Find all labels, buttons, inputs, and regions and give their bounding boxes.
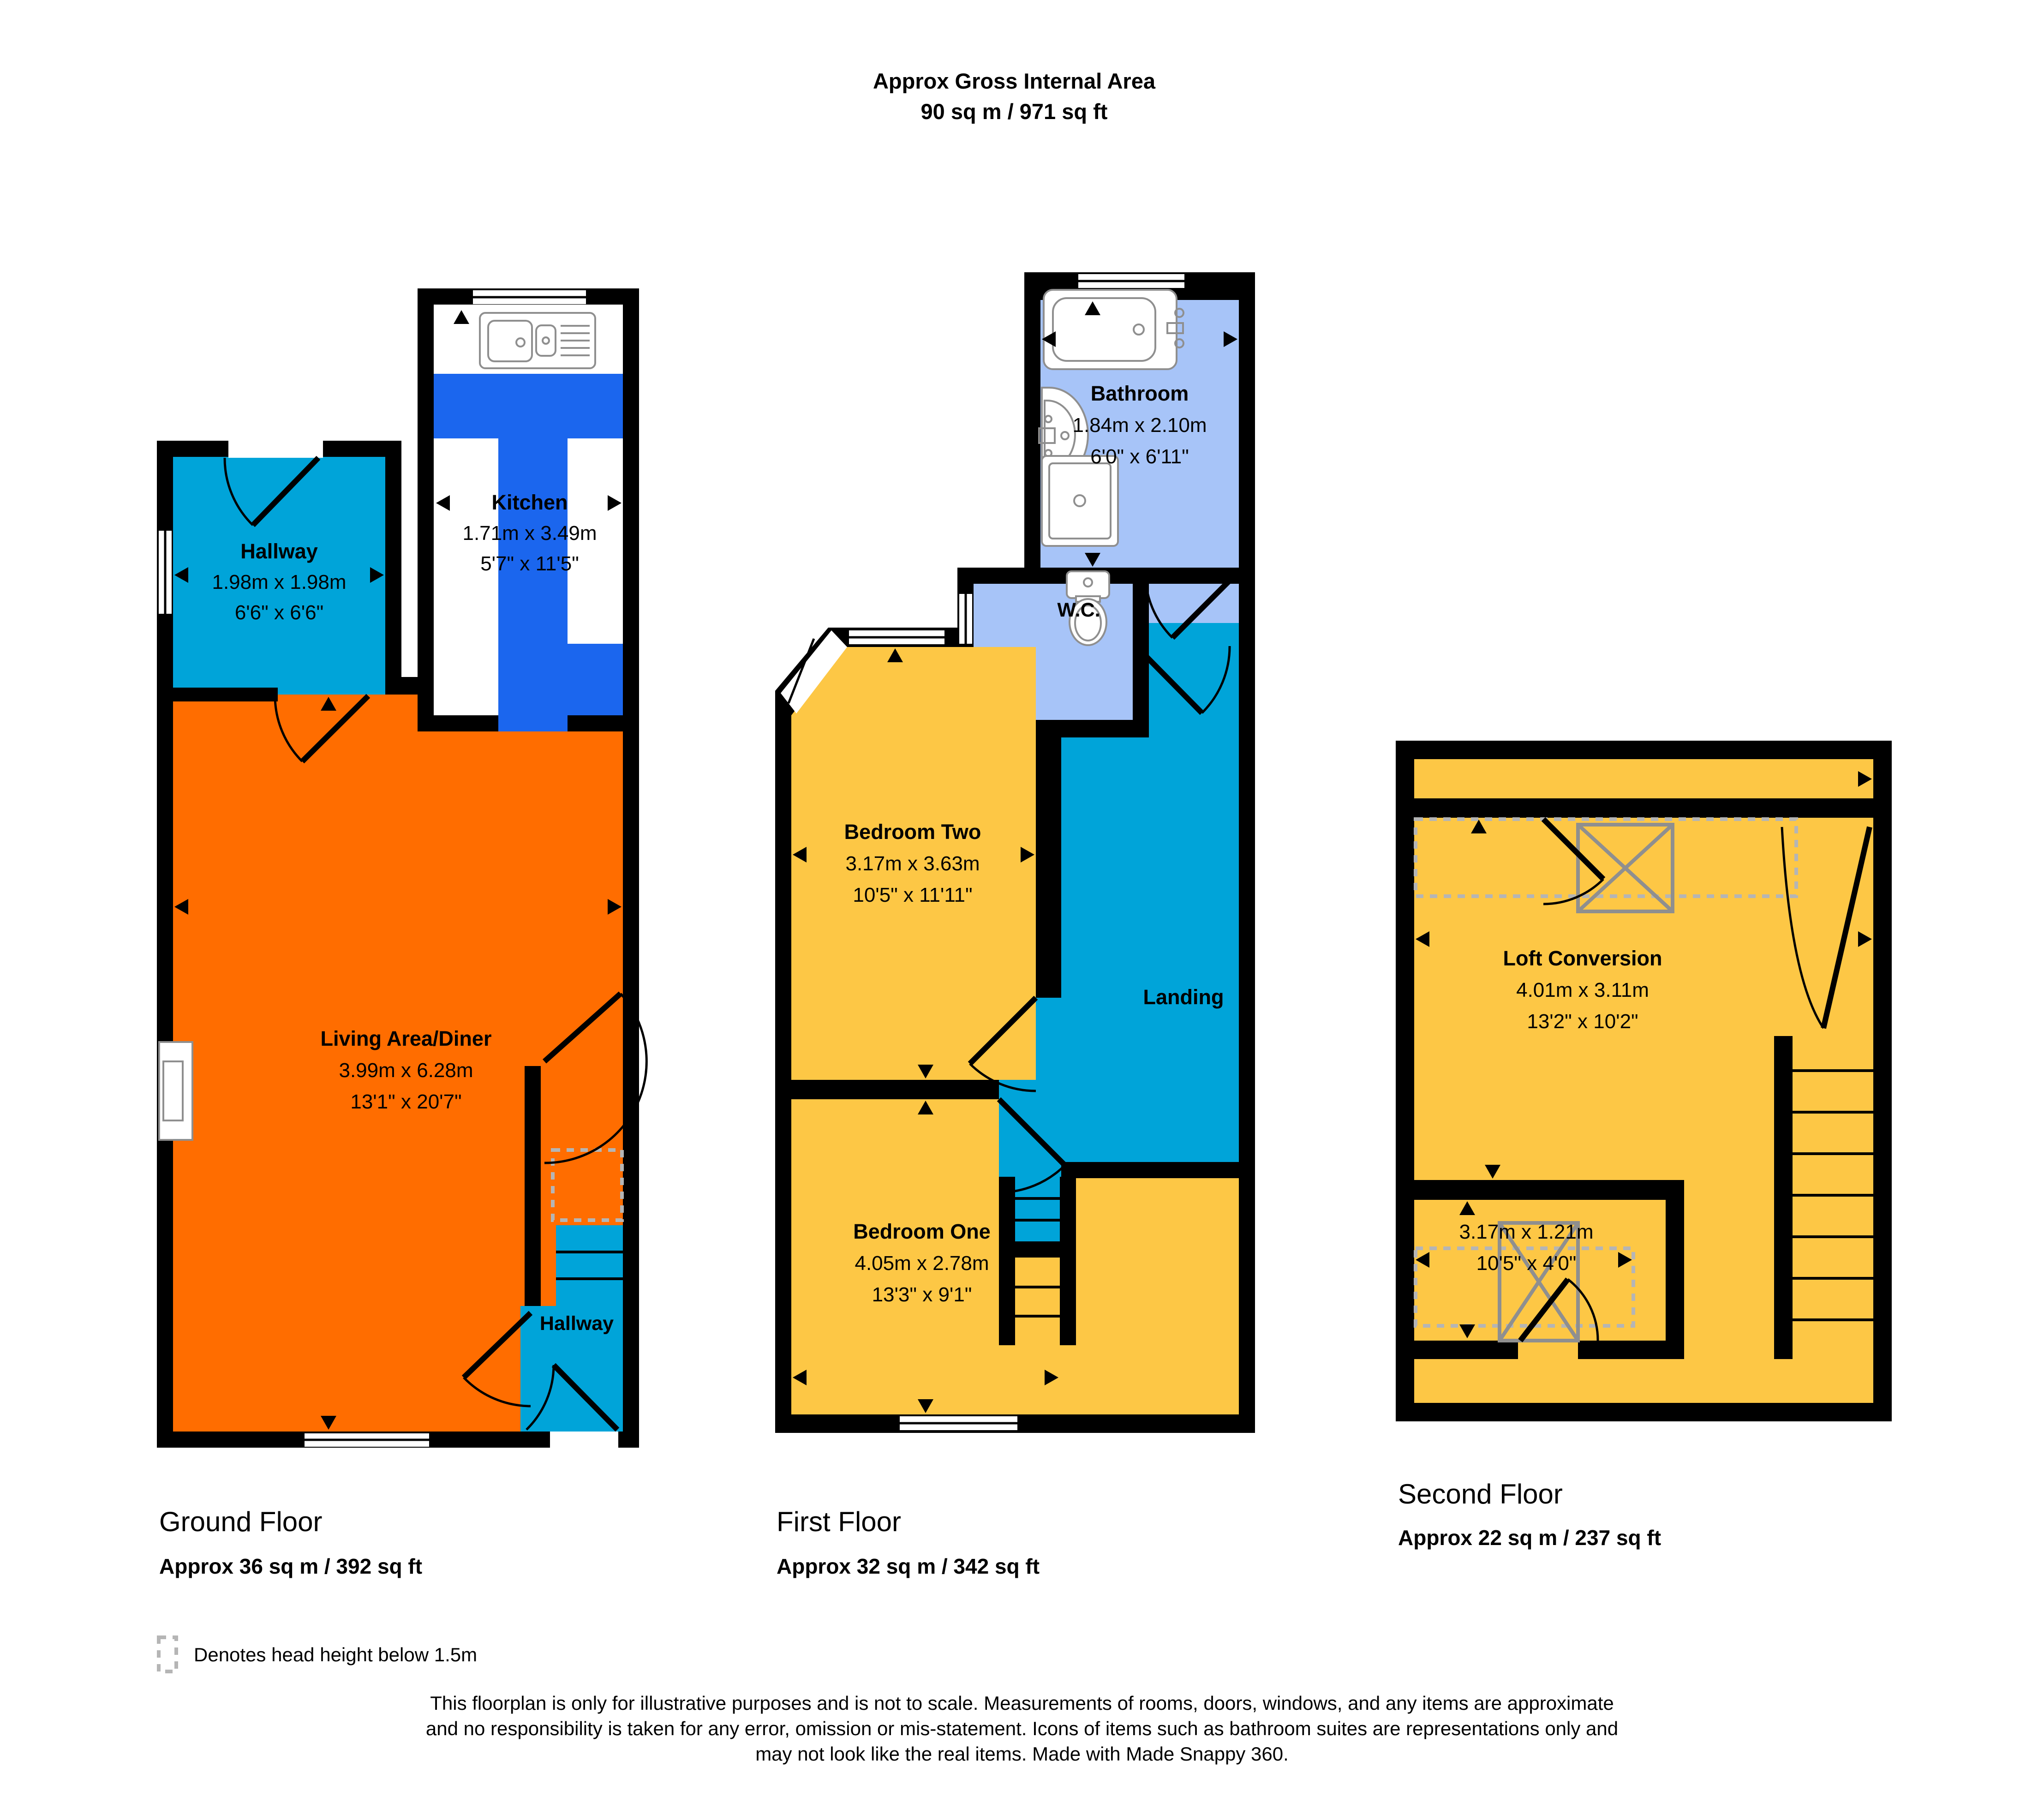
gf-staircase	[556, 1225, 623, 1306]
sf-bottom-wall-right	[1578, 1341, 1666, 1359]
bathtub-icon	[1044, 290, 1183, 369]
gf-hallway-dims-m: 1.98m x 1.98m	[212, 571, 346, 593]
ground-floor-plan: Hallway 1.98m x 1.98m 6'6" x 6'6" Kitche…	[157, 288, 646, 1578]
disclaimer-line-3: may not look like the real items. Made w…	[755, 1743, 1289, 1765]
fireplace-icon	[159, 1042, 192, 1140]
sf-eaves-strip-top	[1414, 759, 1873, 798]
ground-floor-title: Ground Floor	[159, 1506, 323, 1537]
bathroom-dims-m: 1.84m x 2.10m	[1072, 414, 1207, 437]
legend: Denotes head height below 1.5m	[159, 1637, 477, 1671]
loft-label: Loft Conversion	[1503, 946, 1662, 970]
landing-floor-upper	[1149, 623, 1239, 737]
first-floor-plan: Bathroom 1.84m x 2.10m 6'0" x 6'11" W.C.…	[775, 272, 1255, 1578]
bathroom-label: Bathroom	[1091, 382, 1189, 405]
landing-label: Landing	[1143, 985, 1224, 1009]
loft-floor	[1414, 818, 1873, 1403]
floorplan-canvas: Approx Gross Internal Area 90 sq m / 971…	[0, 0, 2044, 1809]
ff-staircase	[1015, 1177, 1060, 1345]
sf-bottom-wall-left	[1414, 1341, 1518, 1359]
back-door-opening	[550, 1432, 618, 1448]
kitchen-floor-corner	[568, 644, 623, 715]
bedroom-one-dims-ft: 13'3" x 9'1"	[872, 1283, 972, 1306]
sf-stairs-wall	[1774, 1036, 1793, 1359]
disclaimer-line-1: This floorplan is only for illustrative …	[430, 1692, 1614, 1714]
ff-stairs-wall-right	[1060, 1177, 1076, 1345]
bedroom-two-dims-m: 3.17m x 3.63m	[845, 852, 980, 875]
kitchen-dims-m: 1.71m x 3.49m	[462, 522, 597, 545]
gf-rear-hallway-label: Hallway	[540, 1312, 614, 1335]
kitchen-sink-icon	[480, 313, 595, 368]
living-dims-ft: 13'1" x 20'7"	[350, 1090, 461, 1113]
bedroom-one-label: Bedroom One	[853, 1220, 991, 1243]
header: Approx Gross Internal Area 90 sq m / 971…	[873, 69, 1156, 124]
second-floor-title: Second Floor	[1398, 1479, 1563, 1509]
disclaimer-line-2: and no responsibility is taken for any e…	[426, 1718, 1618, 1739]
wc-label: W.C.	[1057, 599, 1100, 621]
first-floor-title: First Floor	[777, 1506, 901, 1537]
bedroom-two-label: Bedroom Two	[844, 820, 981, 844]
bedroom-one-dims-m: 4.05m x 2.78m	[855, 1252, 989, 1275]
bedroom-two-dims-ft: 10'5" x 11'11"	[853, 884, 972, 906]
gf-stub-wall	[157, 688, 278, 701]
bathroom-dims-ft: 6'0" x 6'11"	[1090, 445, 1189, 468]
gf-stairs-wall	[525, 1066, 541, 1306]
sf-lower-dims-m: 3.17m x 1.21m	[1459, 1221, 1593, 1243]
first-floor-area: Approx 32 sq m / 342 sq ft	[777, 1554, 1040, 1578]
sf-mid-wall	[1414, 1180, 1666, 1200]
sf-top-wall-right	[1601, 798, 1795, 818]
disclaimer: This floorplan is only for illustrative …	[426, 1692, 1618, 1765]
head-height-legend-icon	[159, 1637, 176, 1671]
sf-vert-wall	[1666, 1180, 1684, 1359]
gf-hallway-label: Hallway	[240, 539, 318, 563]
ff-stairs-wall-left	[999, 1177, 1015, 1345]
ground-floor-area: Approx 36 sq m / 392 sq ft	[159, 1554, 422, 1578]
gross-area-title: Approx Gross Internal Area	[873, 69, 1156, 93]
living-label: Living Area/Diner	[321, 1027, 492, 1050]
kitchen-label: Kitchen	[491, 491, 568, 514]
living-dims-m: 3.99m x 6.28m	[339, 1059, 473, 1082]
second-floor-area: Approx 22 sq m / 237 sq ft	[1398, 1526, 1661, 1550]
second-floor-plan: Loft Conversion 4.01m x 3.11m 13'2" x 10…	[1396, 741, 1892, 1550]
front-door-opening	[228, 441, 323, 458]
loft-dims-m: 4.01m x 3.11m	[1516, 979, 1649, 1001]
sf-top-wall-left	[1414, 798, 1541, 818]
gross-area-value: 90 sq m / 971 sq ft	[921, 99, 1108, 124]
sf-lower-dims-ft: 10'5" x 4'0"	[1476, 1252, 1577, 1275]
legend-text: Denotes head height below 1.5m	[194, 1644, 477, 1665]
loft-dims-ft: 13'2" x 10'2"	[1527, 1010, 1638, 1033]
landing-floor-main	[1061, 737, 1239, 1162]
floorplan-page: Approx Gross Internal Area 90 sq m / 971…	[0, 0, 2044, 1809]
shower-icon	[1042, 456, 1118, 546]
landing-door-zone	[1036, 998, 1061, 1081]
landing-bottom-wall	[1061, 1162, 1239, 1178]
kitchen-dims-ft: 5'7" x 11'5"	[480, 552, 579, 575]
gf-hallway-dims-ft: 6'6" x 6'6"	[235, 601, 323, 624]
